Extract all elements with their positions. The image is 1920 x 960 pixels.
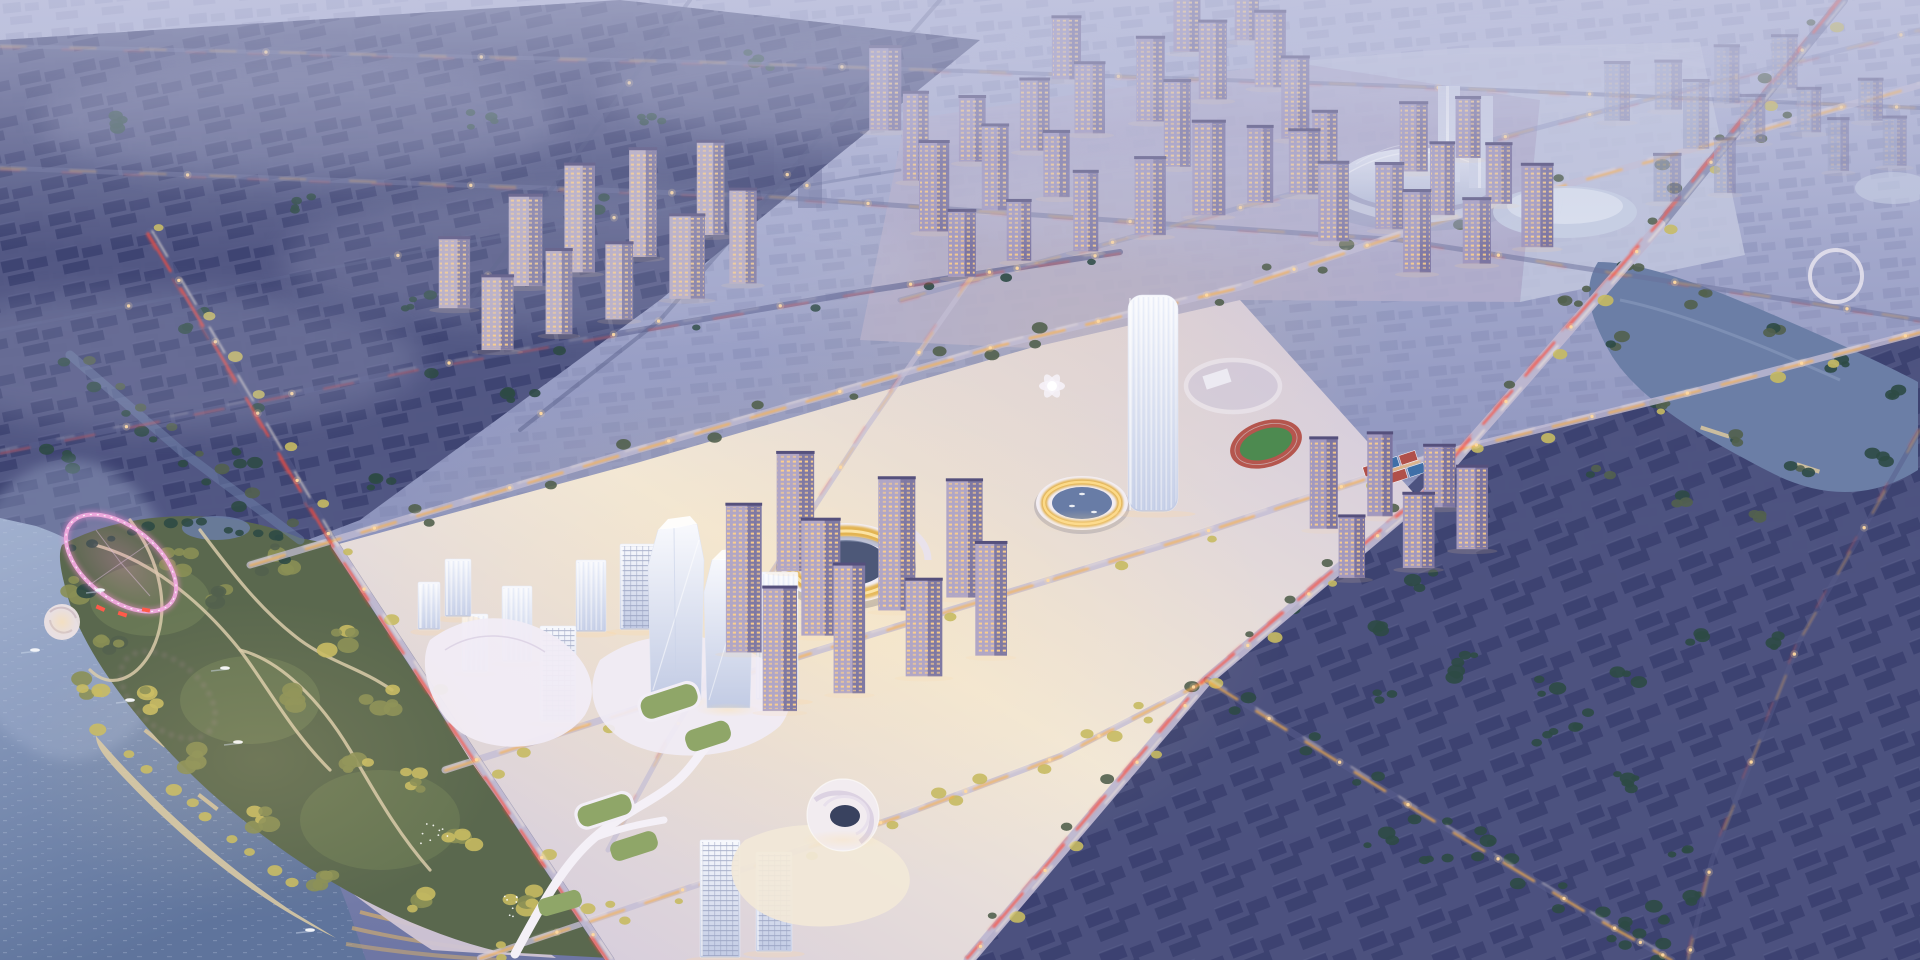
tree <box>1038 764 1052 774</box>
tree <box>931 788 946 799</box>
pool-lounger <box>509 914 511 916</box>
street-lamp <box>1307 592 1310 595</box>
school-ellipse-walkway <box>1186 360 1280 412</box>
tree <box>1309 732 1321 741</box>
street-lamp <box>1504 400 1507 403</box>
tree <box>503 894 519 905</box>
tree <box>1553 349 1567 359</box>
street-lamp <box>612 333 615 336</box>
street-lamp <box>1845 307 1848 310</box>
tree <box>1419 856 1430 864</box>
tree <box>1622 670 1631 677</box>
tree <box>278 564 294 576</box>
tower-base-glow <box>940 276 984 282</box>
tower-base-glow <box>538 333 581 339</box>
tree <box>1728 429 1743 440</box>
street-lamp <box>1475 443 1478 446</box>
tower-base-glow <box>1447 548 1497 554</box>
street-lamp <box>1406 803 1409 806</box>
tree <box>1613 771 1622 777</box>
tree <box>1374 696 1384 703</box>
tree <box>751 401 763 410</box>
tree <box>164 518 178 528</box>
tree <box>1841 361 1849 367</box>
tree <box>224 527 233 534</box>
tower-roof <box>725 503 762 506</box>
tree <box>1442 854 1454 863</box>
tower-roof <box>905 578 943 581</box>
tree <box>529 389 540 397</box>
tree <box>424 368 439 378</box>
pool-lounger <box>506 899 508 901</box>
tree <box>183 548 199 560</box>
tree <box>1322 559 1333 567</box>
tower-windows <box>1368 436 1391 514</box>
tower-base-glow <box>1454 263 1499 269</box>
tree <box>1598 295 1614 307</box>
tower-roof <box>762 586 797 589</box>
tree <box>407 905 418 913</box>
tower-roof <box>1456 465 1489 468</box>
tree <box>1828 360 1840 368</box>
street-lamp <box>1689 948 1692 951</box>
street-lamp <box>1183 704 1186 707</box>
tree <box>1284 596 1295 604</box>
tree <box>1245 631 1253 637</box>
tower-roof <box>833 563 866 566</box>
tree <box>232 449 242 456</box>
tower-windows <box>1404 496 1434 566</box>
street-lamp <box>1496 857 1499 860</box>
tower-base-glow <box>1360 515 1401 521</box>
tower-windows <box>1340 519 1364 576</box>
street-lamp <box>295 479 298 482</box>
city-masterplan-render <box>0 0 1920 960</box>
tower-windows <box>976 545 1006 653</box>
tree <box>1684 300 1698 310</box>
street-lamp <box>1046 579 1049 582</box>
tree <box>1888 393 1896 399</box>
tree <box>1558 295 1573 306</box>
street-lamp <box>1800 362 1803 365</box>
haze-patch <box>600 35 1200 145</box>
tree <box>933 346 947 356</box>
street-lamp <box>879 821 882 824</box>
tree <box>1621 921 1630 927</box>
tower-roof <box>878 476 916 479</box>
tree <box>1151 751 1162 759</box>
street-lamp <box>1749 760 1752 763</box>
tree <box>367 484 375 490</box>
tree <box>1534 676 1545 684</box>
tower-base-glow <box>895 675 954 681</box>
tree <box>1682 890 1700 903</box>
tower-windows <box>835 567 865 691</box>
street-lamp <box>917 351 920 354</box>
tree <box>1573 723 1584 731</box>
tree <box>887 821 899 830</box>
tree <box>285 442 297 451</box>
street-lamp <box>1639 941 1642 944</box>
tree <box>580 903 595 914</box>
street-lamp <box>555 930 558 933</box>
street-lamp <box>1707 870 1710 873</box>
tower-roof <box>1367 431 1393 434</box>
tree <box>1372 689 1381 696</box>
tower-roof <box>1423 444 1456 447</box>
tree <box>1645 900 1663 913</box>
street-lamp <box>1686 391 1689 394</box>
street-lamp <box>362 587 365 590</box>
tree <box>501 387 514 396</box>
tree <box>1510 878 1526 889</box>
street-lamp <box>1569 325 1572 328</box>
tree <box>1802 468 1815 478</box>
street-lamp <box>979 945 982 948</box>
tower-base-glow <box>752 710 807 716</box>
street-lamp <box>508 486 511 489</box>
tree <box>1537 691 1546 697</box>
tower-roof <box>975 541 1008 544</box>
tree <box>178 460 188 467</box>
tree <box>1032 322 1048 333</box>
tree <box>235 530 244 536</box>
street-lamp <box>1497 253 1500 256</box>
tree <box>1685 638 1695 645</box>
tree <box>215 464 230 475</box>
tower-base-glow <box>824 692 874 698</box>
tree <box>506 397 515 403</box>
tree <box>616 439 631 450</box>
tree <box>1414 584 1426 593</box>
pool-lounger <box>504 896 506 898</box>
tree <box>619 917 630 925</box>
tower-roof <box>1309 436 1338 439</box>
tree <box>1447 665 1465 678</box>
tree <box>1262 264 1272 271</box>
tower-base-glow <box>472 349 523 355</box>
tree <box>424 519 435 527</box>
canal-boat <box>1091 511 1097 513</box>
glass-facade <box>420 584 439 628</box>
tree <box>1318 266 1328 273</box>
tree <box>1442 817 1453 825</box>
street-lamp <box>839 466 842 469</box>
tree <box>605 901 615 908</box>
tree <box>1655 938 1671 950</box>
street-lamp <box>327 532 330 535</box>
office-base-glow <box>1111 511 1196 518</box>
tree <box>1229 706 1241 715</box>
tree <box>1115 561 1128 570</box>
boat <box>30 648 40 652</box>
tree <box>416 887 435 901</box>
tree <box>1784 461 1798 471</box>
tree <box>317 499 329 507</box>
tree <box>1558 882 1568 889</box>
tree <box>1549 682 1566 695</box>
tree <box>343 548 353 555</box>
street-lamp <box>1862 526 1865 529</box>
render-canvas <box>0 0 1920 960</box>
tree <box>1606 935 1616 942</box>
funnel-oculus <box>830 805 860 827</box>
street-lamp <box>1097 734 1100 737</box>
park-pond <box>182 516 250 540</box>
street-lamp <box>1043 869 1046 872</box>
tree <box>1614 331 1630 342</box>
tree <box>247 457 263 468</box>
tree <box>1363 842 1371 848</box>
street-lamp <box>1246 644 1249 647</box>
pool-lounger <box>516 896 518 898</box>
street-lamp <box>177 279 180 282</box>
tower-windows <box>1457 469 1487 547</box>
tree <box>287 518 299 527</box>
street-lamp <box>539 412 542 415</box>
tree <box>1352 779 1361 786</box>
tree <box>1029 340 1041 349</box>
tower-windows <box>727 507 761 650</box>
street-lamp <box>1562 897 1565 900</box>
tree <box>39 444 54 455</box>
amphitheater-disc <box>44 604 80 640</box>
street-lamp <box>1673 281 1676 284</box>
street-lamp <box>1338 761 1341 764</box>
tree <box>545 481 557 490</box>
tree <box>1000 273 1012 282</box>
tree <box>1763 328 1776 337</box>
tree <box>255 566 269 576</box>
haze-patch <box>940 140 1540 260</box>
tower-base-glow <box>1393 567 1444 573</box>
tree <box>1215 299 1225 306</box>
tower-windows <box>1311 441 1337 527</box>
street-lamp <box>1613 926 1616 929</box>
boat <box>305 928 315 932</box>
tree <box>245 487 260 498</box>
tree <box>1772 631 1785 640</box>
street-lamp <box>1376 534 1379 537</box>
tree <box>1631 676 1648 688</box>
tower-base-glow <box>966 655 1017 661</box>
tree <box>1658 916 1670 925</box>
street-lamp <box>964 790 967 793</box>
tower-windows <box>907 582 942 674</box>
street-lamp <box>988 270 991 273</box>
tree <box>1693 628 1708 639</box>
tree <box>675 898 683 904</box>
tower-roof <box>776 451 814 454</box>
tree <box>1531 739 1542 747</box>
tree <box>1668 851 1677 857</box>
canal-boat <box>1079 493 1085 495</box>
tree <box>1144 717 1153 724</box>
tree <box>1604 471 1616 480</box>
office-base-glow <box>743 951 804 958</box>
tree <box>1876 451 1890 461</box>
street-lamp <box>1048 758 1051 761</box>
tree <box>195 451 204 457</box>
tree <box>1606 340 1616 348</box>
tower-base-glow <box>999 260 1038 266</box>
tree <box>1241 692 1257 703</box>
tree <box>1631 775 1639 781</box>
tree <box>174 548 185 556</box>
street-lamp <box>1192 685 1195 688</box>
tree <box>988 912 997 918</box>
tree <box>149 436 158 442</box>
tree <box>231 501 246 512</box>
tree <box>1504 381 1515 389</box>
tree <box>1100 774 1114 784</box>
tree <box>370 474 382 483</box>
park-warm-glow <box>20 600 500 920</box>
tree <box>1732 438 1744 446</box>
tree <box>1657 409 1665 415</box>
tree <box>1378 827 1396 840</box>
street-lamp <box>1292 268 1295 271</box>
glass-facade <box>1130 297 1177 510</box>
street-lamp <box>1661 953 1664 956</box>
tree <box>1061 823 1072 831</box>
pool-lounger <box>515 901 517 903</box>
tree <box>553 346 566 355</box>
glass-facade <box>578 562 605 630</box>
boat <box>95 588 105 592</box>
tree <box>1770 371 1786 382</box>
street-lamp <box>1135 761 1138 764</box>
tree <box>1299 746 1312 755</box>
street-lamp <box>540 856 543 859</box>
street-lamp <box>447 361 450 364</box>
tree <box>1471 852 1484 861</box>
tree <box>1408 814 1422 824</box>
tree <box>1479 835 1496 847</box>
tree <box>1375 621 1388 630</box>
tree <box>707 432 721 442</box>
haze-patch <box>280 190 920 330</box>
street-lamp <box>1793 652 1796 655</box>
tree <box>1133 702 1143 709</box>
tree <box>386 477 397 485</box>
tower-base-glow <box>1395 271 1439 277</box>
tree <box>972 773 987 784</box>
tree <box>253 529 264 537</box>
tree <box>201 478 211 485</box>
tree <box>1080 729 1093 738</box>
canal-boat <box>1069 505 1075 507</box>
tower-roof <box>1338 514 1365 517</box>
haze-patch <box>40 60 560 180</box>
tree <box>1574 300 1583 306</box>
street-lamp <box>1207 529 1210 532</box>
tree <box>944 613 956 622</box>
pool-lounger <box>512 916 514 918</box>
tree <box>1770 644 1778 650</box>
tree <box>1474 826 1487 835</box>
tree <box>196 518 207 526</box>
tower-windows <box>764 590 796 709</box>
street-lamp <box>1267 717 1270 720</box>
tree <box>1591 465 1601 472</box>
street-lamp <box>1590 415 1593 418</box>
tree <box>141 521 155 531</box>
tower-b-base-glow <box>696 703 760 717</box>
street-lamp <box>1205 293 1208 296</box>
tree <box>1207 536 1217 543</box>
tree <box>269 530 283 540</box>
tree <box>1682 845 1693 853</box>
street-lamp <box>591 933 594 936</box>
tree <box>1387 690 1398 698</box>
tree <box>1619 940 1632 950</box>
tree <box>270 543 280 550</box>
tower-roof <box>801 518 841 521</box>
petal-core <box>1047 381 1057 391</box>
tree <box>68 576 79 584</box>
glass-facade <box>447 561 470 615</box>
tree <box>1541 433 1555 443</box>
tree <box>1753 513 1767 523</box>
tower-roof <box>946 478 983 481</box>
haze-patch <box>1200 20 1800 120</box>
tree <box>1371 771 1385 781</box>
tree <box>213 588 224 596</box>
street-lamp <box>838 390 841 393</box>
street-lamp <box>1097 320 1100 323</box>
tower-roof <box>1402 492 1435 495</box>
street-lamp <box>1015 266 1018 269</box>
tree <box>1268 632 1283 643</box>
tree <box>1625 784 1638 793</box>
street-lamp <box>1904 334 1907 337</box>
tree <box>1632 928 1646 938</box>
disc-glow <box>48 608 76 636</box>
tree <box>1582 286 1591 293</box>
funnel-glow <box>801 830 885 850</box>
tree <box>496 941 506 948</box>
street-lamp <box>373 526 376 529</box>
tree <box>517 748 531 758</box>
street-lamp <box>667 439 670 442</box>
street-lamp <box>1340 485 1343 488</box>
street-lamp <box>989 346 992 349</box>
tree <box>1549 728 1559 735</box>
pool-lounger <box>512 907 514 909</box>
tower-base-glow <box>1331 577 1373 583</box>
tree <box>1470 652 1478 658</box>
tree <box>849 393 858 399</box>
street-lamp <box>909 283 912 286</box>
tree <box>1679 497 1693 507</box>
street-lamp <box>681 888 684 891</box>
tree <box>1552 904 1565 913</box>
tree <box>233 459 247 469</box>
tree <box>1582 708 1594 717</box>
tree <box>181 518 193 527</box>
street-lamp <box>1635 250 1638 253</box>
tree <box>1633 263 1645 271</box>
tree <box>1586 471 1595 478</box>
